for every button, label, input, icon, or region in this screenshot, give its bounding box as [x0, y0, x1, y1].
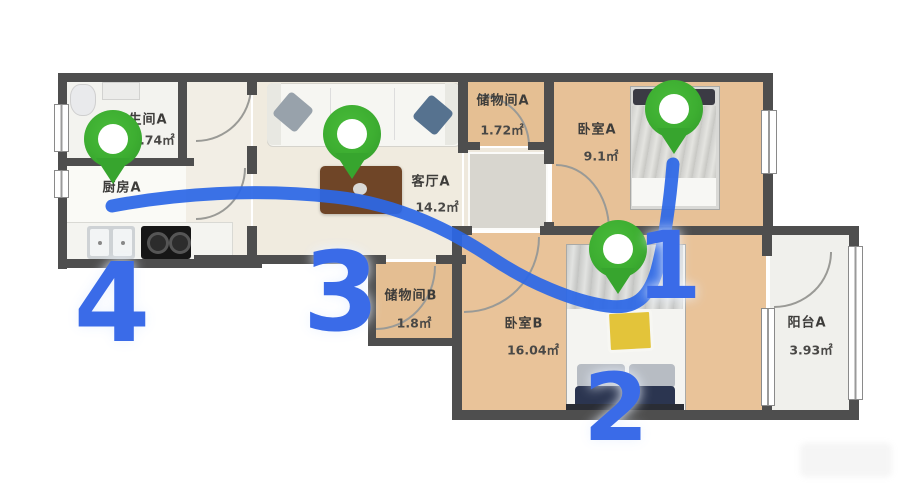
room-area-bedroom-b: 16.04㎡ [507, 340, 559, 359]
room-area-bedroom-a: 9.1㎡ [584, 146, 619, 165]
room-area-storage-a: 1.72㎡ [480, 120, 523, 139]
wall-segment [178, 73, 187, 166]
wall-segment [544, 222, 554, 235]
room-label-balcony-a: 阳台A [787, 312, 826, 331]
bathroom-sink [102, 82, 140, 100]
route-step-number-4: 4 [74, 248, 151, 358]
room-area-living-a: 14.2㎡ [415, 197, 458, 216]
wall-segment [452, 410, 859, 420]
room-label-bedroom-b: 卧室B [505, 313, 544, 332]
window [54, 104, 69, 152]
floorplan: 卫生间A 2.74㎡ 厨房A 客厅A 14.2㎡ 储物间A 1.72㎡ 卧室A … [0, 0, 900, 486]
bed-a-sheet [632, 178, 716, 206]
window [848, 246, 863, 400]
pin-hole [603, 234, 633, 264]
pin-tail [657, 128, 691, 154]
wall-segment [247, 73, 257, 95]
wall-segment [247, 146, 257, 174]
room-label-living-a: 客厅A [411, 171, 450, 190]
sofa-seam [394, 88, 395, 140]
window [54, 170, 69, 198]
route-step-number-3: 3 [303, 237, 380, 347]
pin-tail [601, 268, 635, 294]
room-area-balcony-a: 3.93㎡ [789, 340, 832, 359]
wall-segment [849, 226, 859, 246]
pin-hole [98, 124, 128, 154]
room-label-storage-b: 储物间B [385, 285, 438, 304]
pin-hole [659, 94, 689, 124]
wall-segment [544, 150, 554, 164]
room-label-bedroom-a: 卧室A [577, 119, 616, 138]
pin-tail [335, 153, 369, 179]
location-pin-icon[interactable] [323, 105, 381, 181]
room-area-storage-b: 1.8㎡ [397, 313, 432, 332]
wall-segment [368, 338, 460, 346]
wall-segment [762, 226, 772, 256]
watermark [800, 443, 892, 477]
table-cup [353, 183, 367, 195]
wall-segment [452, 226, 462, 420]
wall-segment [466, 142, 480, 150]
room-label-storage-a: 储物间A [476, 90, 529, 109]
pin-hole [337, 119, 367, 149]
stove-burner [169, 232, 191, 254]
hallway-rug [468, 152, 548, 230]
wall-segment [452, 226, 472, 235]
window [761, 308, 775, 406]
wall-segment [458, 73, 468, 153]
pin-tail [96, 158, 130, 184]
location-pin-icon[interactable] [645, 80, 703, 156]
window [761, 110, 777, 174]
wall-segment [763, 73, 773, 111]
wall-segment [544, 73, 554, 150]
route-step-number-2: 2 [583, 362, 648, 456]
route-step-number-1: 1 [636, 220, 701, 314]
location-pin-icon[interactable] [84, 110, 142, 186]
